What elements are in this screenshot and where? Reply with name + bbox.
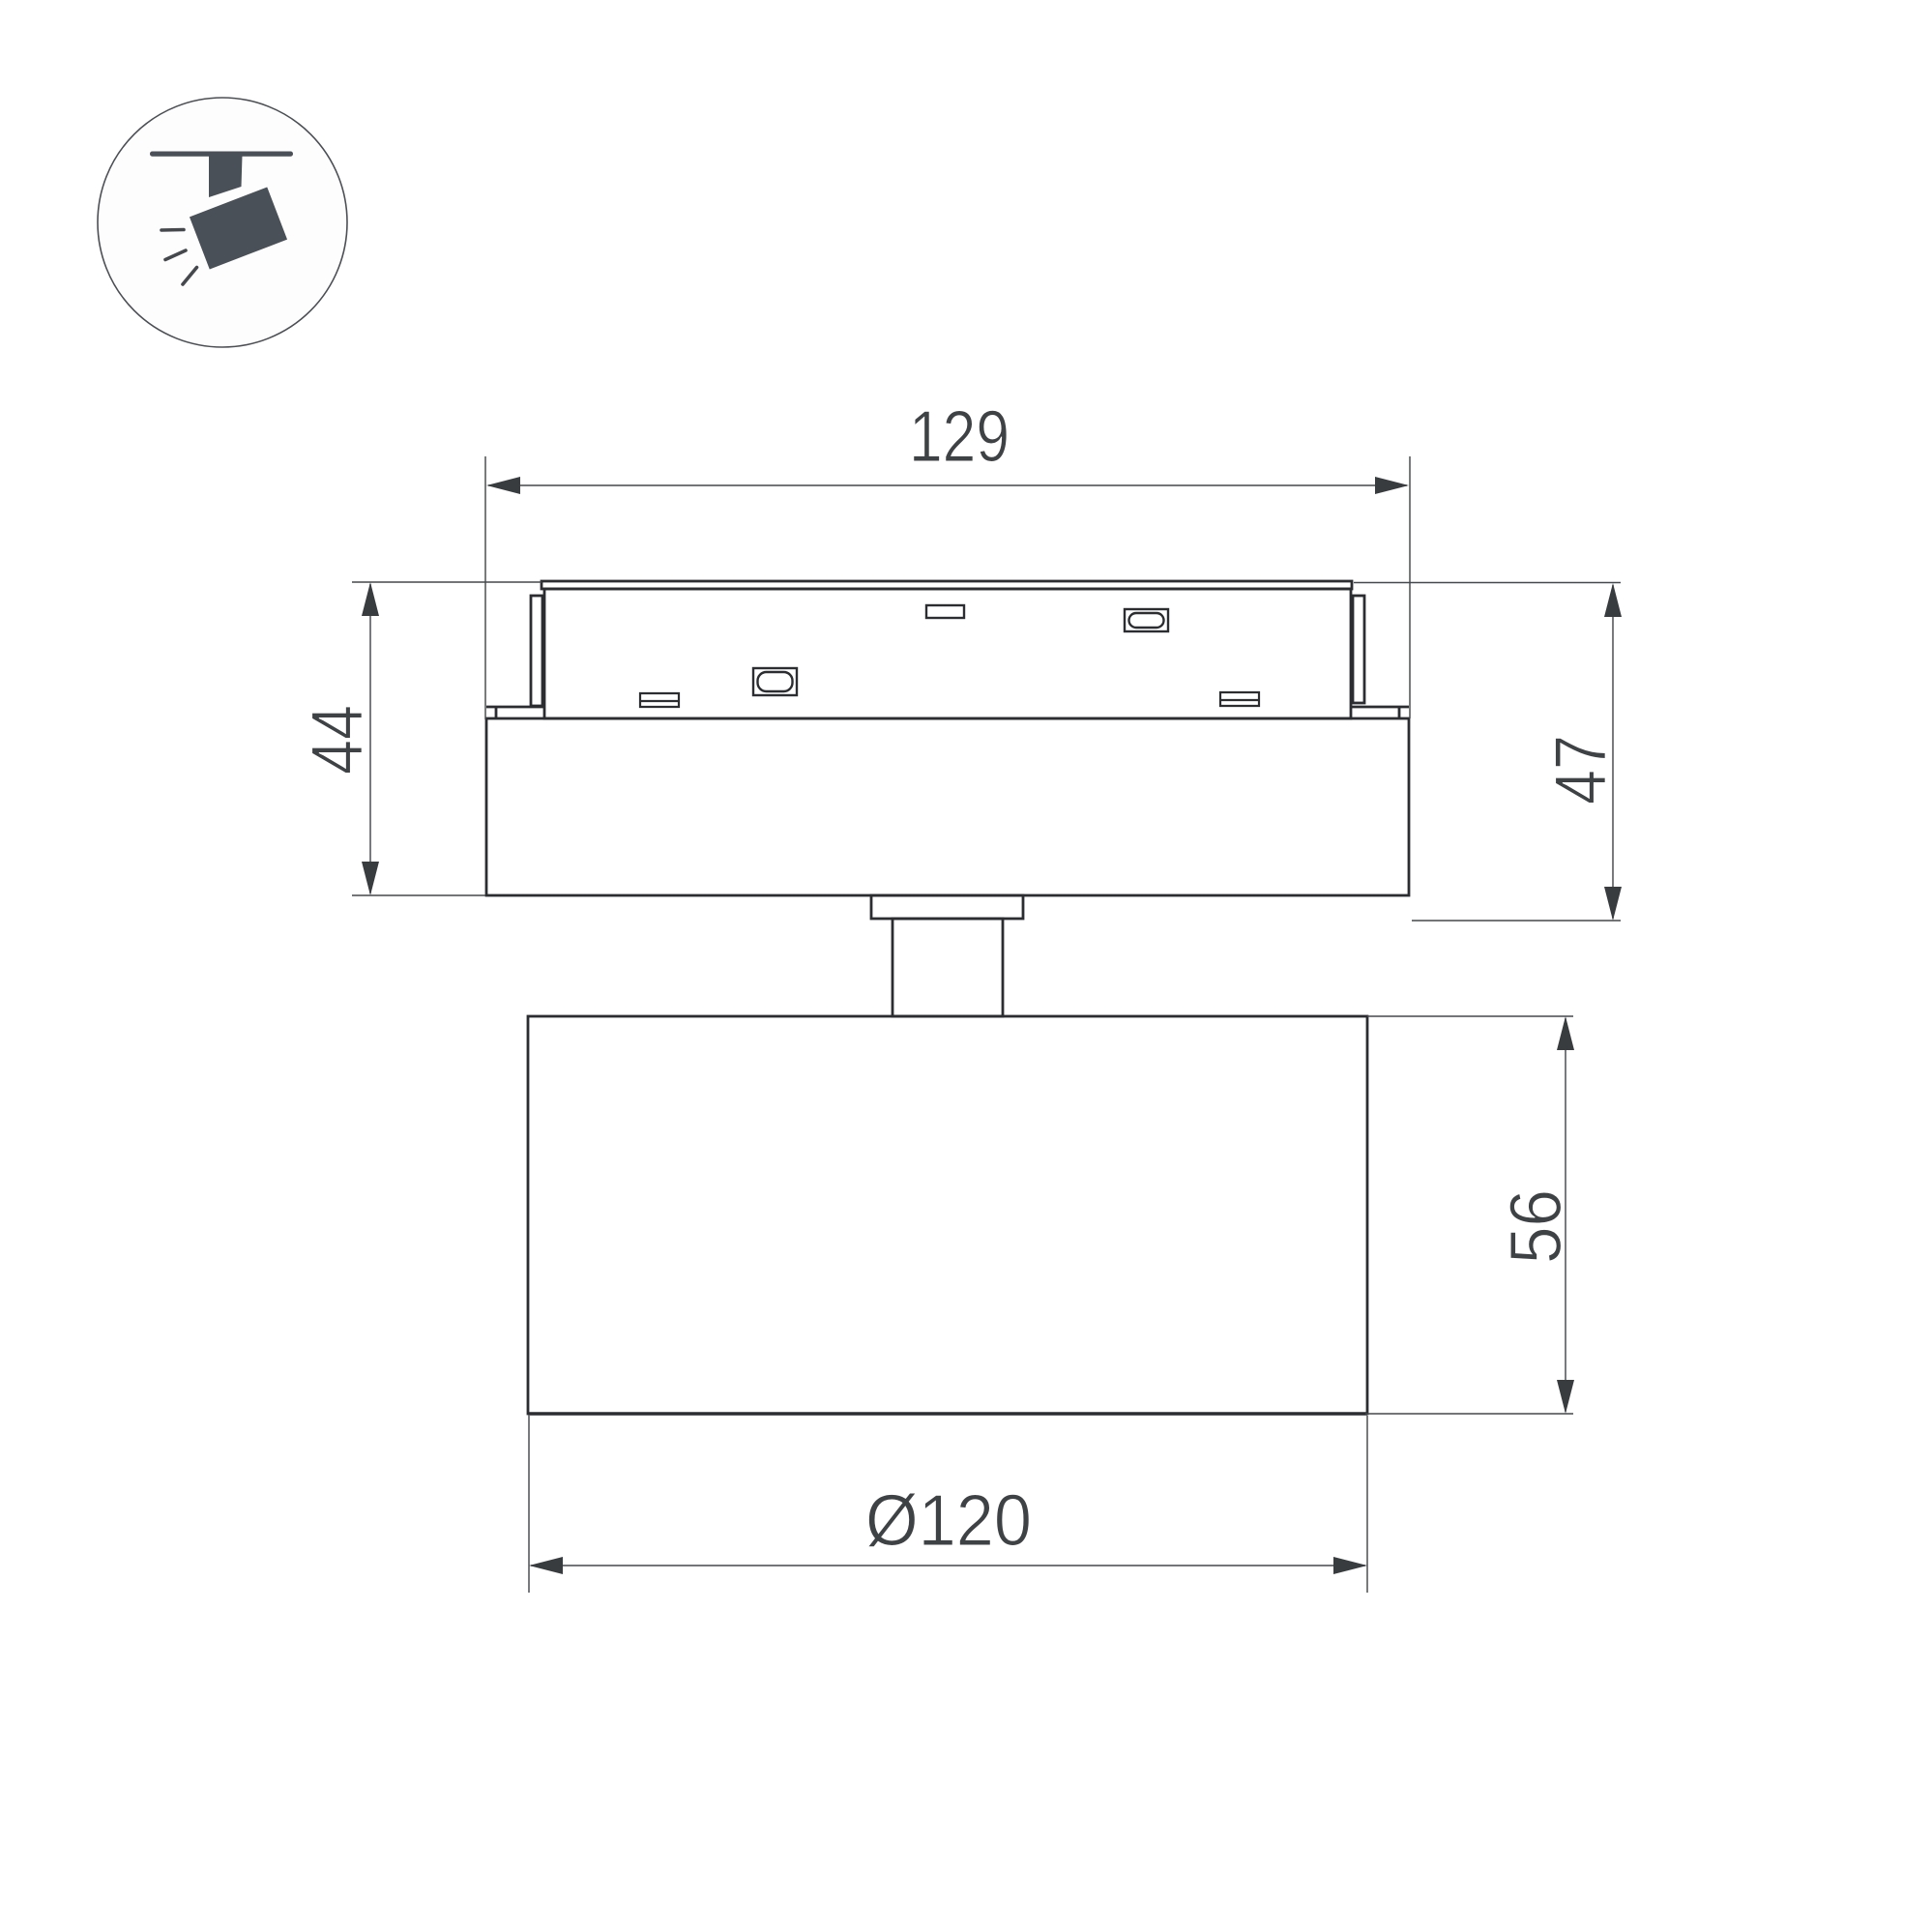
svg-text:44: 44 [296,705,377,775]
svg-text:Ø120: Ø120 [865,1479,1032,1561]
svg-text:47: 47 [1539,735,1621,805]
svg-text:56: 56 [1495,1189,1576,1264]
svg-text:129: 129 [909,395,1010,477]
